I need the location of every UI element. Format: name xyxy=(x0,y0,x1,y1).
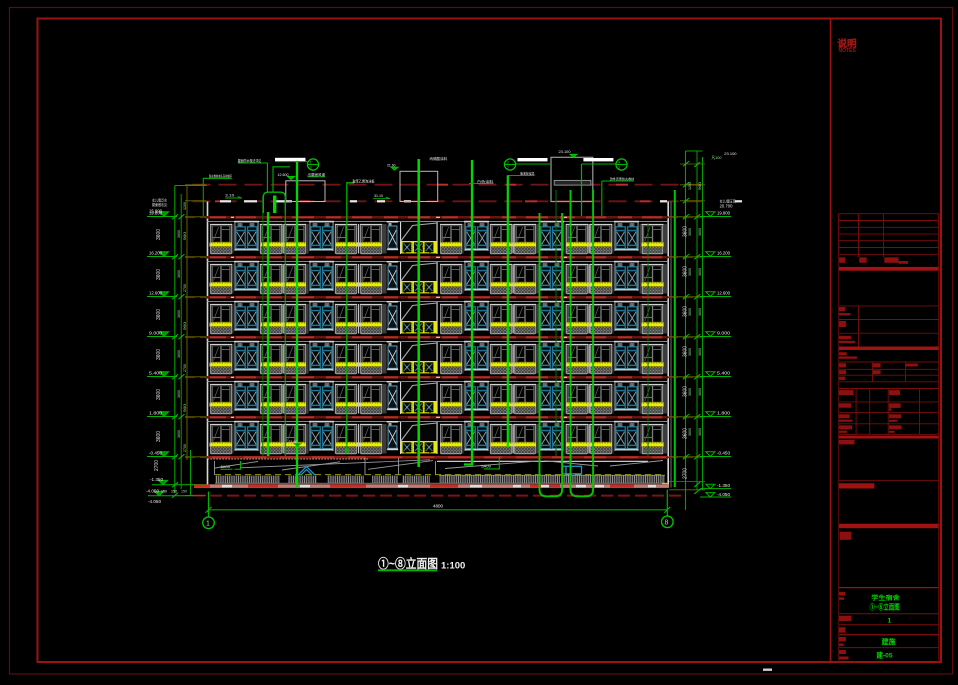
svg-text:150: 150 xyxy=(171,490,177,494)
svg-text:丙烯酸涂料: 丙烯酸涂料 xyxy=(430,156,448,161)
svg-text:5.400: 5.400 xyxy=(717,371,731,376)
svg-text:16.200: 16.200 xyxy=(717,251,731,256)
svg-text:聚苯乙烯泡沫板: 聚苯乙烯泡沫板 xyxy=(353,178,375,183)
svg-text:3600: 3600 xyxy=(177,270,181,278)
svg-text:1200: 1200 xyxy=(183,202,187,210)
svg-text:1200: 1200 xyxy=(688,182,692,190)
svg-text:3600: 3600 xyxy=(688,228,692,236)
svg-text:-4.050: -4.050 xyxy=(146,488,160,493)
svg-text:4800: 4800 xyxy=(433,503,444,508)
svg-text:16.200: 16.200 xyxy=(149,251,163,256)
svg-text:-0.450: -0.450 xyxy=(149,451,163,456)
svg-text:屋面防水做法详见: 屋面防水做法详见 xyxy=(238,158,262,163)
svg-text:3600: 3600 xyxy=(156,309,162,320)
svg-text:屋面做法见: 屋面做法见 xyxy=(152,202,168,207)
svg-text:3600: 3600 xyxy=(156,389,162,400)
svg-text:3600: 3600 xyxy=(698,428,702,436)
svg-text:2700: 2700 xyxy=(183,444,187,452)
svg-text:900: 900 xyxy=(183,232,187,240)
svg-text:19.800: 19.800 xyxy=(717,211,731,216)
svg-text:3600: 3600 xyxy=(698,348,702,356)
svg-text:2700: 2700 xyxy=(183,284,187,292)
svg-text:建-05: 建-05 xyxy=(875,650,892,659)
svg-text:900: 900 xyxy=(183,322,187,330)
svg-text:3600: 3600 xyxy=(698,308,702,316)
svg-text:①~⑧立面图: ①~⑧立面图 xyxy=(870,602,900,611)
svg-text:3600: 3600 xyxy=(156,269,162,280)
svg-text:3.10: 3.10 xyxy=(225,193,235,198)
svg-text:20.700: 20.700 xyxy=(720,204,733,209)
svg-text:150: 150 xyxy=(161,490,167,494)
svg-text:①~⑧立面图: ①~⑧立面图 xyxy=(378,556,438,571)
svg-text:1.800: 1.800 xyxy=(717,411,731,416)
svg-text:-1.350: -1.350 xyxy=(150,477,164,482)
svg-text:3600: 3600 xyxy=(698,388,702,396)
svg-text:900: 900 xyxy=(183,404,187,412)
svg-text:2700: 2700 xyxy=(183,364,187,372)
svg-text:3600: 3600 xyxy=(156,229,162,240)
svg-text:-1.350: -1.350 xyxy=(717,483,731,488)
svg-text:3600: 3600 xyxy=(698,268,702,276)
svg-text:3600: 3600 xyxy=(177,390,181,398)
svg-text:3600: 3600 xyxy=(156,431,162,442)
svg-text:23.100: 23.100 xyxy=(559,149,572,154)
svg-text:12.600: 12.600 xyxy=(717,291,731,296)
svg-text:3600: 3600 xyxy=(177,230,181,238)
svg-text:12.600: 12.600 xyxy=(149,291,163,296)
svg-text:3600: 3600 xyxy=(688,308,692,316)
svg-text:学生宿舍: 学生宿舍 xyxy=(871,594,901,602)
svg-text:5A09: 5A09 xyxy=(481,464,491,469)
svg-text:-4.050: -4.050 xyxy=(717,492,731,497)
svg-text:15.900: 15.900 xyxy=(149,209,163,214)
svg-text:-4.050: -4.050 xyxy=(148,499,162,504)
svg-text:凡100: 凡100 xyxy=(711,156,721,160)
svg-text:3600: 3600 xyxy=(177,310,181,318)
svg-text:9.000: 9.000 xyxy=(149,331,163,336)
svg-text:900: 900 xyxy=(698,182,702,190)
svg-text:31.10: 31.10 xyxy=(374,193,384,198)
svg-text:2700: 2700 xyxy=(154,460,160,471)
svg-text:3600: 3600 xyxy=(156,349,162,360)
svg-text:5.400: 5.400 xyxy=(149,371,163,376)
svg-text:6A09: 6A09 xyxy=(221,464,231,469)
svg-text:女儿墙泛水: 女儿墙泛水 xyxy=(152,198,168,203)
svg-text:1.800: 1.800 xyxy=(149,411,163,416)
svg-text:NOTES: NOTES xyxy=(839,48,857,54)
svg-text:1:100: 1:100 xyxy=(441,561,465,572)
svg-text:21.60: 21.60 xyxy=(387,162,396,167)
svg-text:出屋面风道: 出屋面风道 xyxy=(308,172,326,177)
svg-text:3600: 3600 xyxy=(688,348,692,356)
svg-text:3600: 3600 xyxy=(688,268,692,276)
svg-text:23.100: 23.100 xyxy=(724,151,737,156)
svg-text:150: 150 xyxy=(181,490,187,494)
svg-text:8: 8 xyxy=(665,520,669,527)
svg-text:1: 1 xyxy=(206,521,210,528)
svg-text:3600: 3600 xyxy=(177,430,181,438)
svg-text:3600: 3600 xyxy=(698,228,702,236)
svg-text:9.000: 9.000 xyxy=(717,331,731,336)
svg-text:1: 1 xyxy=(888,618,892,625)
svg-text:-0.450: -0.450 xyxy=(717,451,731,456)
svg-text:白色涂料: 白色涂料 xyxy=(477,179,494,184)
svg-text:2700: 2700 xyxy=(683,468,689,479)
svg-text:3600: 3600 xyxy=(688,428,692,436)
svg-text:3600: 3600 xyxy=(177,350,181,358)
svg-text:建施: 建施 xyxy=(882,637,896,646)
svg-text:3600: 3600 xyxy=(688,388,692,396)
